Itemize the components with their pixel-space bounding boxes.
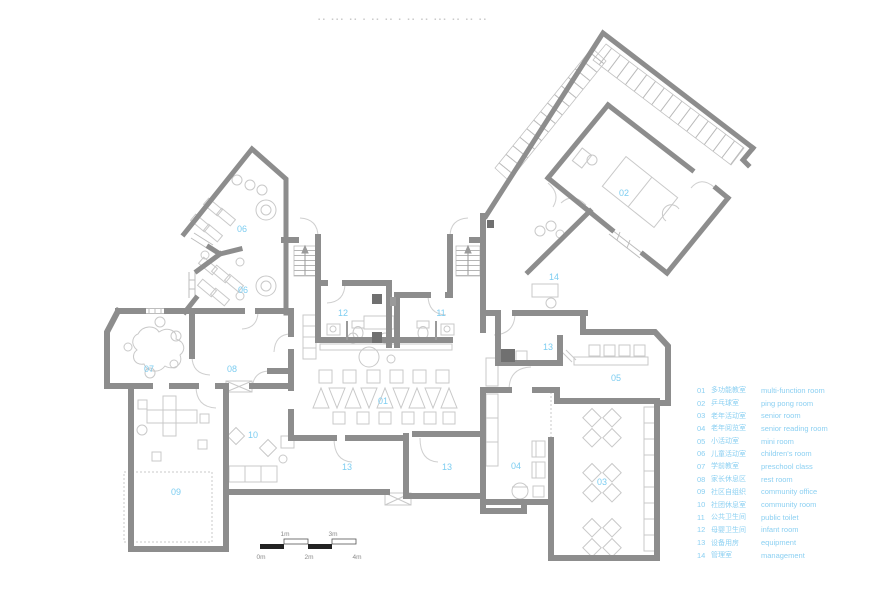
legend-num: 11 (697, 513, 711, 522)
scale-tick-3m: 3m (328, 531, 337, 538)
room-label-13a: 13 (342, 462, 352, 472)
legend-en: public toilet (761, 513, 799, 522)
legend-zh: 小活动室 (711, 436, 761, 446)
room-label-09: 09 (171, 487, 181, 497)
room-label-12: 12 (338, 308, 348, 318)
legend-en: rest room (761, 475, 793, 484)
stair-arrows (302, 246, 471, 275)
scale-tick-4m: 4m (352, 554, 361, 561)
legend-row: 07学前教室preschool class (697, 460, 828, 473)
legend-en: mini room (761, 437, 794, 446)
legend-zh: 社区自组织 (711, 487, 761, 497)
legend-row: 04老年阅览室senior reading room (697, 422, 828, 435)
legend-row: 14管理室management (697, 549, 828, 562)
legend-zh: 乒乓球室 (711, 398, 761, 408)
furniture (124, 148, 679, 557)
legend-row: 12母婴卫生间infant room (697, 524, 828, 537)
room-label-04: 04 (511, 461, 521, 471)
legend-row: 08家长休息区rest room (697, 473, 828, 486)
legend-num: 01 (697, 386, 711, 395)
legend-num: 02 (697, 399, 711, 408)
legend-zh: 学前教室 (711, 461, 761, 471)
legend-num: 14 (697, 551, 711, 560)
legend-num: 09 (697, 487, 711, 496)
legend-zh: 社团休息室 (711, 500, 761, 510)
legend-zh: 设备用房 (711, 538, 761, 548)
room-label-08: 08 (227, 364, 237, 374)
legend-row: 06儿童活动室children's room (697, 447, 828, 460)
scale-bar: 0m 1m 2m 3m 4m (256, 531, 361, 561)
room-label-06a: 06 (237, 224, 247, 234)
legend-zh: 家长休息区 (711, 474, 761, 484)
legend-row: 05小活动室mini room (697, 435, 828, 448)
room-label-11: 11 (436, 308, 445, 318)
legend-num: 10 (697, 500, 711, 509)
legend-row: 09社区自组织community office (697, 486, 828, 499)
room-label-05: 05 (611, 373, 621, 383)
legend-row: 01多功能教室multi-function room (697, 384, 828, 397)
legend-zh: 管理室 (711, 550, 761, 560)
legend-en: multi-function room (761, 386, 825, 395)
legend-num: 05 (697, 437, 711, 446)
legend-num: 07 (697, 462, 711, 471)
room-label-03: 03 (597, 477, 607, 487)
legend-zh: 多功能教室 (711, 385, 761, 395)
legend-zh: 儿童活动室 (711, 449, 761, 459)
room-label-01: 01 (378, 396, 388, 406)
room-label-10: 10 (248, 430, 258, 440)
legend-zh: 母婴卫生间 (711, 525, 761, 535)
room-label-06b: 06 (238, 285, 248, 295)
legend-num: 06 (697, 449, 711, 458)
legend-zh: 公共卫生间 (711, 512, 761, 522)
legend-en: ping pong room (761, 399, 813, 408)
legend-num: 13 (697, 538, 711, 547)
legend-num: 04 (697, 424, 711, 433)
room-label-13c: 13 (543, 342, 553, 352)
legend-en: infant room (761, 525, 799, 534)
room-label-14: 14 (549, 272, 559, 282)
scale-tick-0m: 0m (256, 554, 265, 561)
room-label-07: 07 (144, 364, 154, 374)
legend-en: management (761, 551, 805, 560)
legend-row: 11公共卫生间public toilet (697, 511, 828, 524)
legend-row: 03老年活动室senior room (697, 409, 828, 422)
room-label-13b: 13 (442, 462, 452, 472)
legend-en: children's room (761, 449, 812, 458)
scale-tick-1m: 1m (280, 531, 289, 538)
legend-en: preschool class (761, 462, 813, 471)
legend-zh: 老年活动室 (711, 411, 761, 421)
legend-num: 08 (697, 475, 711, 484)
legend-en: community office (761, 487, 817, 496)
legend-row: 02乒乓球室ping pong room (697, 397, 828, 410)
scale-tick-2m: 2m (304, 554, 313, 561)
legend: 01多功能教室multi-function room 02乒乓球室ping po… (697, 384, 828, 562)
legend-num: 12 (697, 525, 711, 534)
room-label-02: 02 (619, 188, 629, 198)
legend-zh: 老年阅览室 (711, 423, 761, 433)
walls (107, 216, 668, 558)
legend-row: 10社团休息室community room (697, 498, 828, 511)
floor-plan-page: ▪▪ ▪▪▪ ▪▪ ▪ ▪▪ ▪▪ ▪ ▪▪ ▪▪ ▪▪▪ ▪▪ ▪▪ ▪▪ (0, 0, 890, 612)
legend-num: 03 (697, 411, 711, 420)
legend-en: equipment (761, 538, 796, 547)
legend-en: senior room (761, 411, 801, 420)
legend-row: 13设备用房equipment (697, 536, 828, 549)
door-arcs (192, 182, 714, 462)
legend-en: senior reading room (761, 424, 828, 433)
legend-en: community room (761, 500, 816, 509)
